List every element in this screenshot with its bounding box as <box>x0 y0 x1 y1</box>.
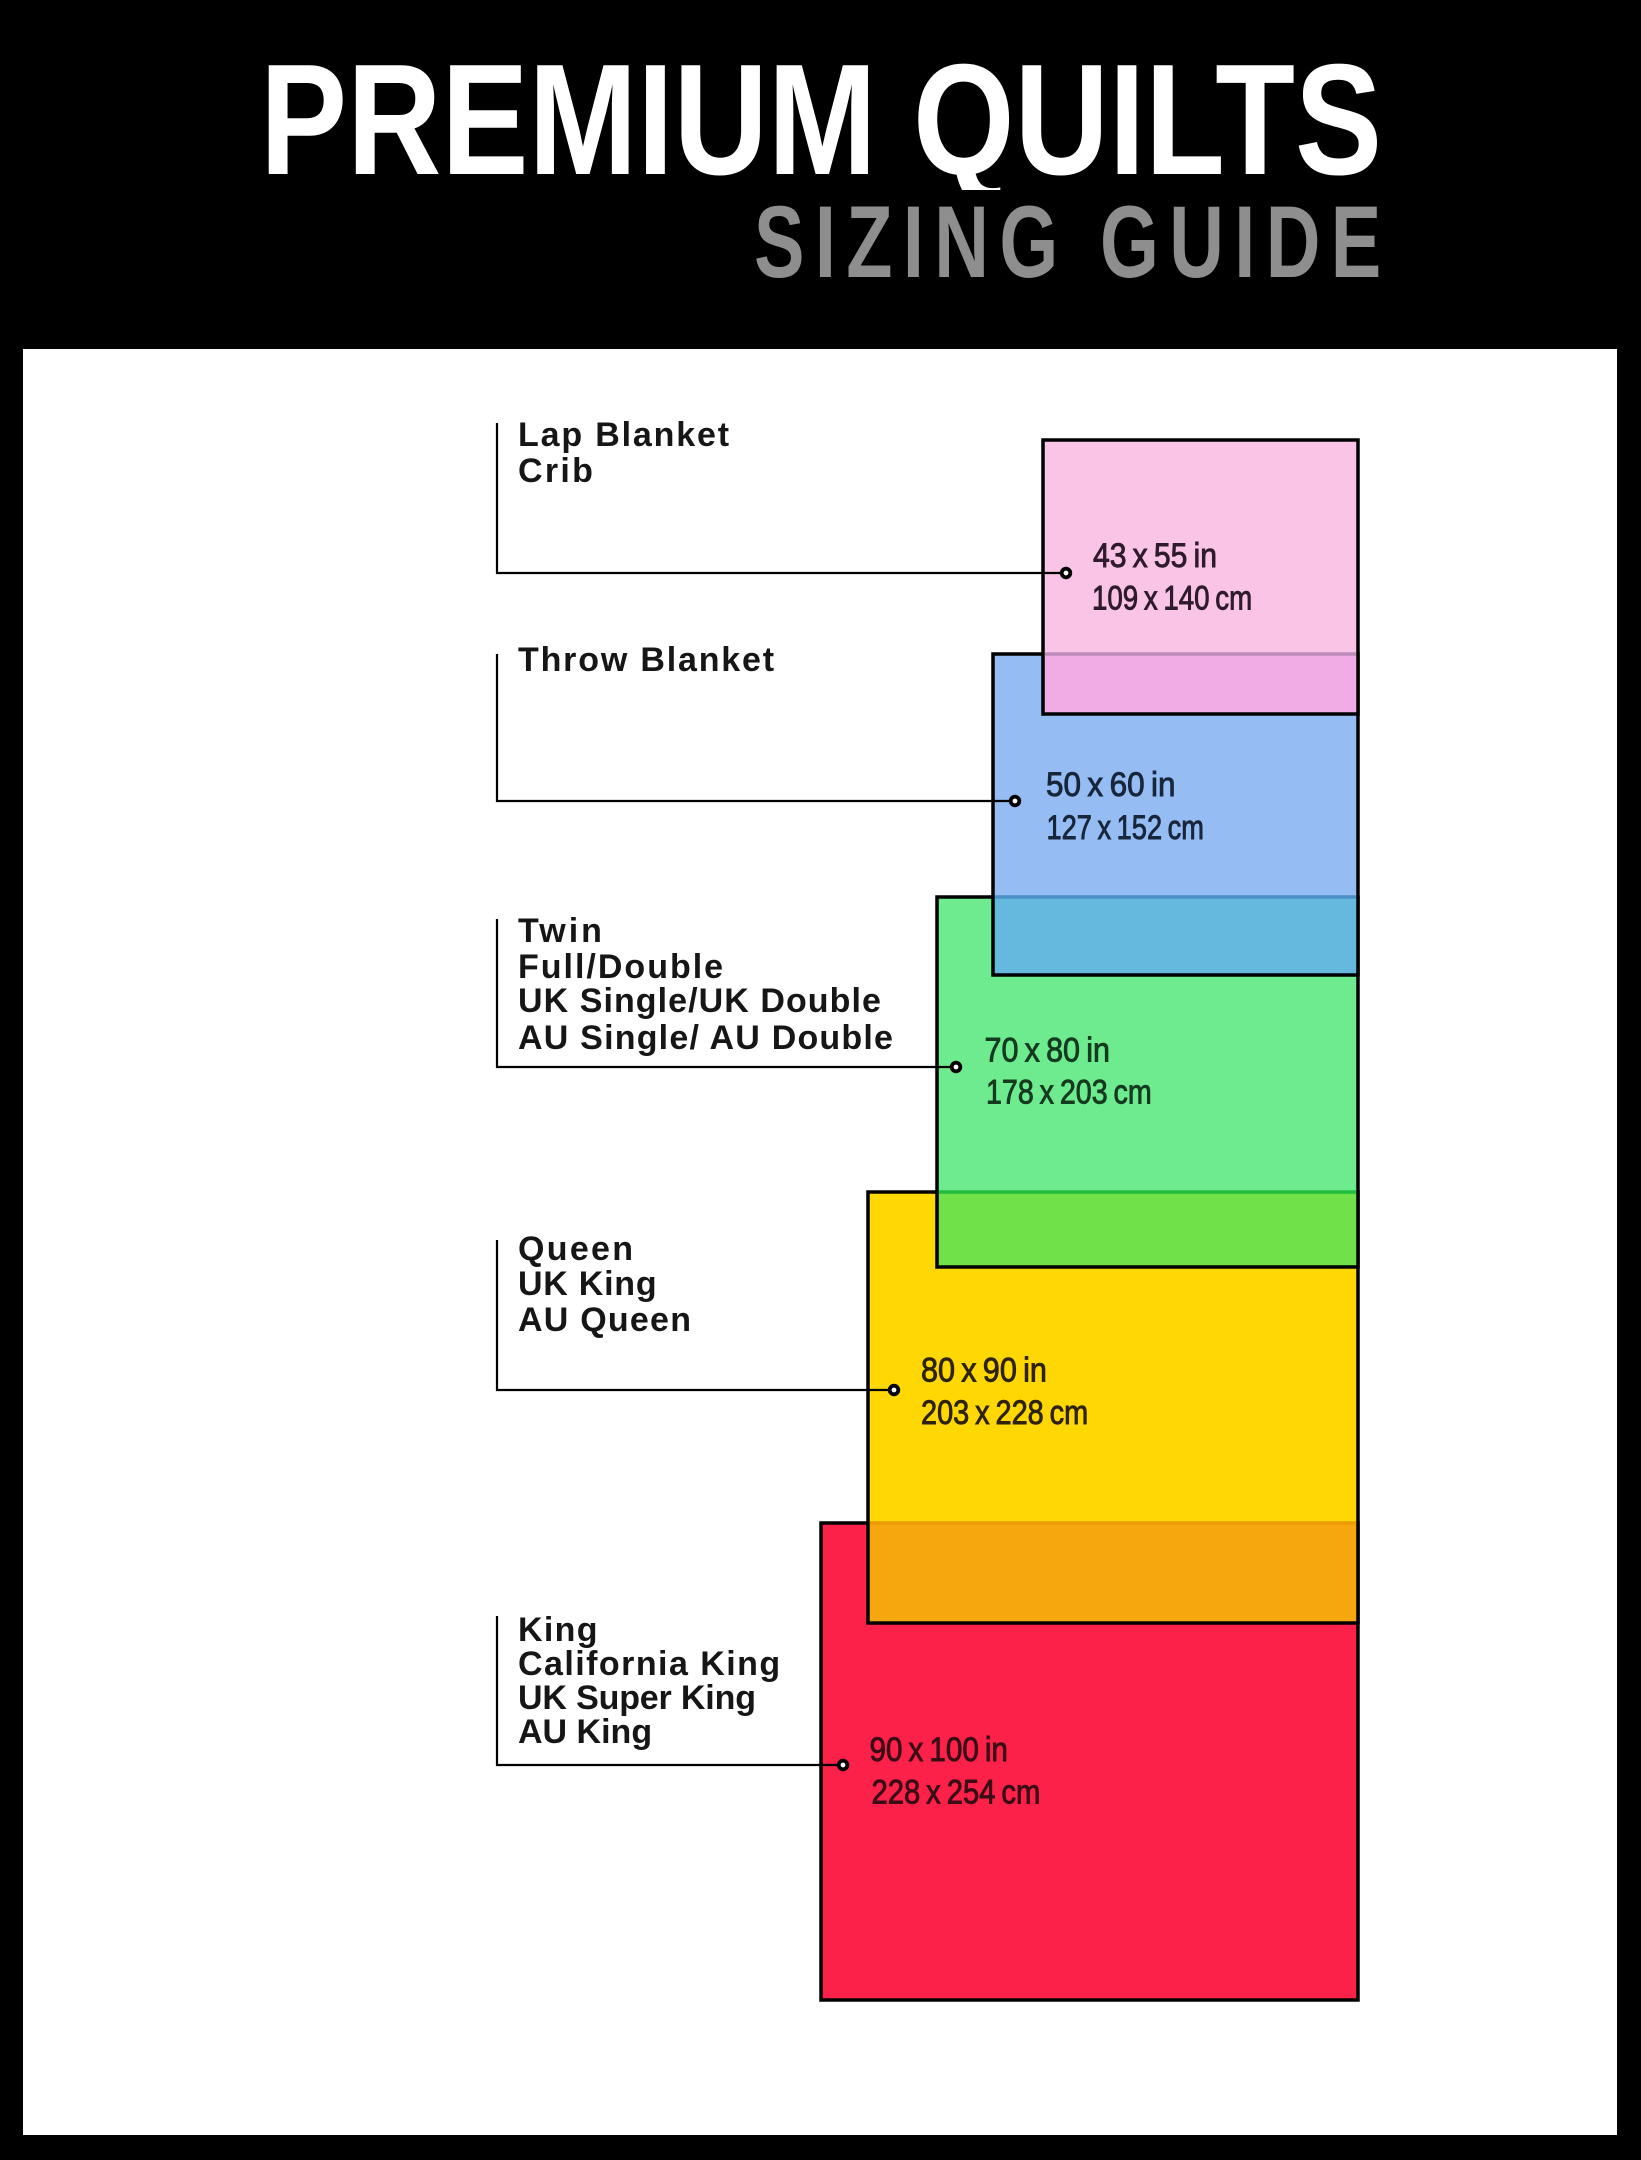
svg-text:50 x 60 in: 50 x 60 in <box>1046 765 1176 803</box>
svg-text:90 x 100 in: 90 x 100 in <box>870 1730 1008 1768</box>
svg-text:70 x 80 in: 70 x 80 in <box>985 1031 1110 1069</box>
svg-text:Throw Blanket: Throw Blanket <box>518 641 776 679</box>
svg-text:King: King <box>518 1611 599 1649</box>
svg-text:AU Queen: AU Queen <box>518 1301 692 1339</box>
svg-text:127 x 152 cm: 127 x 152 cm <box>1047 808 1204 847</box>
svg-text:AU King: AU King <box>518 1713 652 1751</box>
svg-text:Twin: Twin <box>518 912 605 950</box>
svg-text:UK Super King: UK Super King <box>518 1679 756 1717</box>
svg-text:80 x 90 in: 80 x 90 in <box>921 1351 1047 1389</box>
svg-text:UK King: UK King <box>518 1265 657 1303</box>
svg-text:SIZING GUIDE: SIZING GUIDE <box>754 186 1392 300</box>
svg-text:109 x 140 cm: 109 x 140 cm <box>1092 579 1252 617</box>
svg-text:Queen: Queen <box>518 1230 635 1268</box>
svg-text:178 x 203 cm: 178 x 203 cm <box>986 1073 1152 1111</box>
svg-text:Lap Blanket: Lap Blanket <box>518 416 731 454</box>
svg-text:228 x 254 cm: 228 x 254 cm <box>872 1772 1041 1811</box>
svg-text:PREMIUM QUILTS: PREMIUM QUILTS <box>260 31 1382 208</box>
svg-text:Crib: Crib <box>518 452 595 490</box>
svg-text:AU Single/ AU Double: AU Single/ AU Double <box>518 1019 894 1057</box>
svg-text:Full/Double: Full/Double <box>518 948 725 986</box>
svg-text:203 x 228 cm: 203 x 228 cm <box>921 1393 1088 1432</box>
svg-text:California King: California King <box>518 1645 782 1683</box>
svg-text:UK Single/UK Double: UK Single/UK Double <box>518 982 882 1020</box>
svg-text:43 x 55 in: 43 x 55 in <box>1093 536 1217 574</box>
